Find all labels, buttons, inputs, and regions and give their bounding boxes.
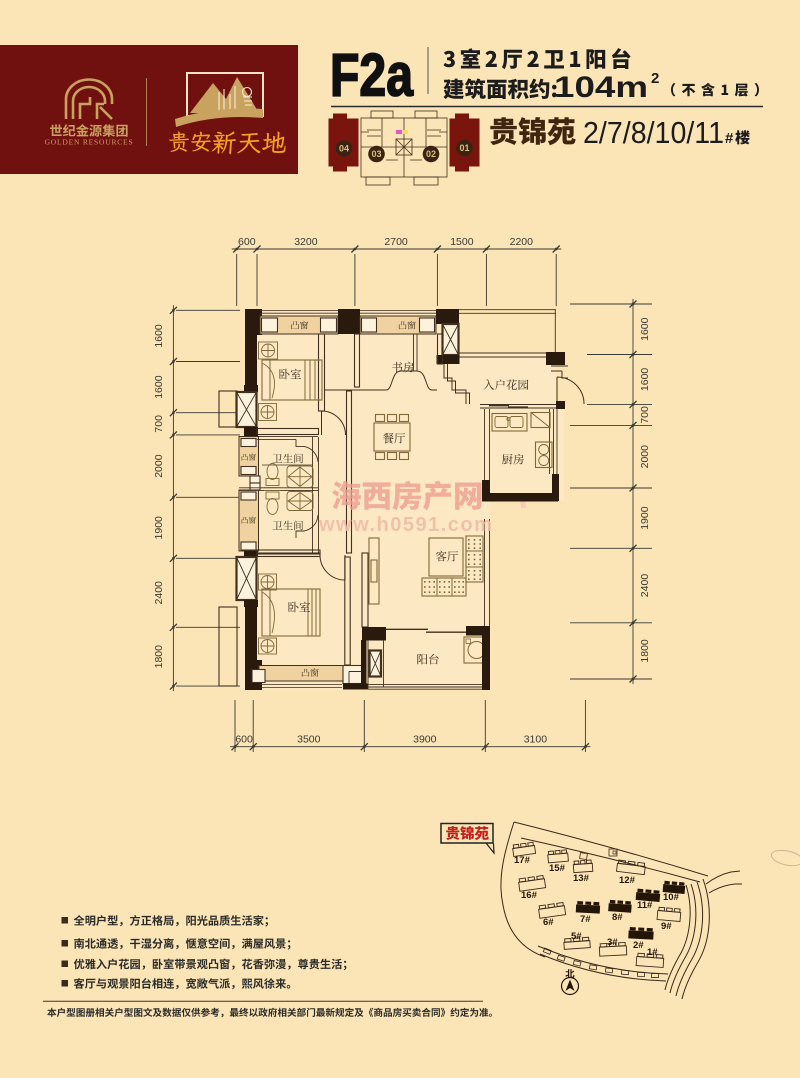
svg-text:600: 600 [238,236,256,248]
svg-text:5#: 5# [571,931,582,942]
svg-text:16#: 16# [521,890,538,901]
svg-text:1600: 1600 [639,368,651,392]
svg-text:8#: 8# [612,912,623,923]
svg-text:1900: 1900 [153,516,165,540]
svg-text:03: 03 [371,149,381,159]
svg-text:3500: 3500 [297,734,321,746]
svg-text:700: 700 [153,415,165,433]
svg-text:9#: 9# [661,921,672,932]
svg-text:2400: 2400 [639,574,651,598]
svg-text:11#: 11# [637,900,653,911]
svg-text:2#: 2# [633,940,644,951]
svg-text:1800: 1800 [639,639,651,663]
svg-text:1600: 1600 [153,324,165,348]
svg-text:1#: 1# [647,947,658,958]
svg-text:F2a: F2a [330,42,414,109]
svg-text:13#: 13# [573,873,590,884]
svg-text:2000: 2000 [153,454,165,478]
svg-text:104m: 104m [554,71,648,104]
svg-text:#: # [725,130,734,147]
svg-text:2700: 2700 [384,236,408,248]
svg-text:2/7/8/10/11: 2/7/8/10/11 [583,115,724,150]
svg-text:02: 02 [426,149,436,159]
svg-text:2000: 2000 [639,445,651,469]
svg-text:2: 2 [651,70,659,87]
svg-text:2400: 2400 [153,581,165,605]
svg-text:10#: 10# [663,892,680,903]
svg-text:04: 04 [339,144,349,154]
svg-text:www.h0591.com: www.h0591.com [318,514,493,536]
svg-text:12#: 12# [619,875,636,886]
svg-text:3#: 3# [607,937,618,948]
svg-text:17#: 17# [514,855,531,866]
svg-text:6#: 6# [543,917,554,928]
svg-text:2200: 2200 [510,236,534,248]
svg-text:7#: 7# [580,914,591,925]
svg-text:3900: 3900 [413,734,437,746]
svg-text:3100: 3100 [524,734,548,746]
svg-text:600: 600 [235,734,253,746]
svg-text:15#: 15# [549,863,566,874]
svg-text:1600: 1600 [153,375,165,399]
svg-text:GOLDEN RESOURCES: GOLDEN RESOURCES [45,138,134,147]
svg-text:3200: 3200 [294,236,318,248]
svg-text:1900: 1900 [639,506,651,530]
svg-text:1800: 1800 [153,645,165,669]
svg-text:700: 700 [639,406,651,424]
svg-text:01: 01 [459,143,469,153]
svg-text:1500: 1500 [450,236,474,248]
svg-text:1600: 1600 [639,317,651,341]
